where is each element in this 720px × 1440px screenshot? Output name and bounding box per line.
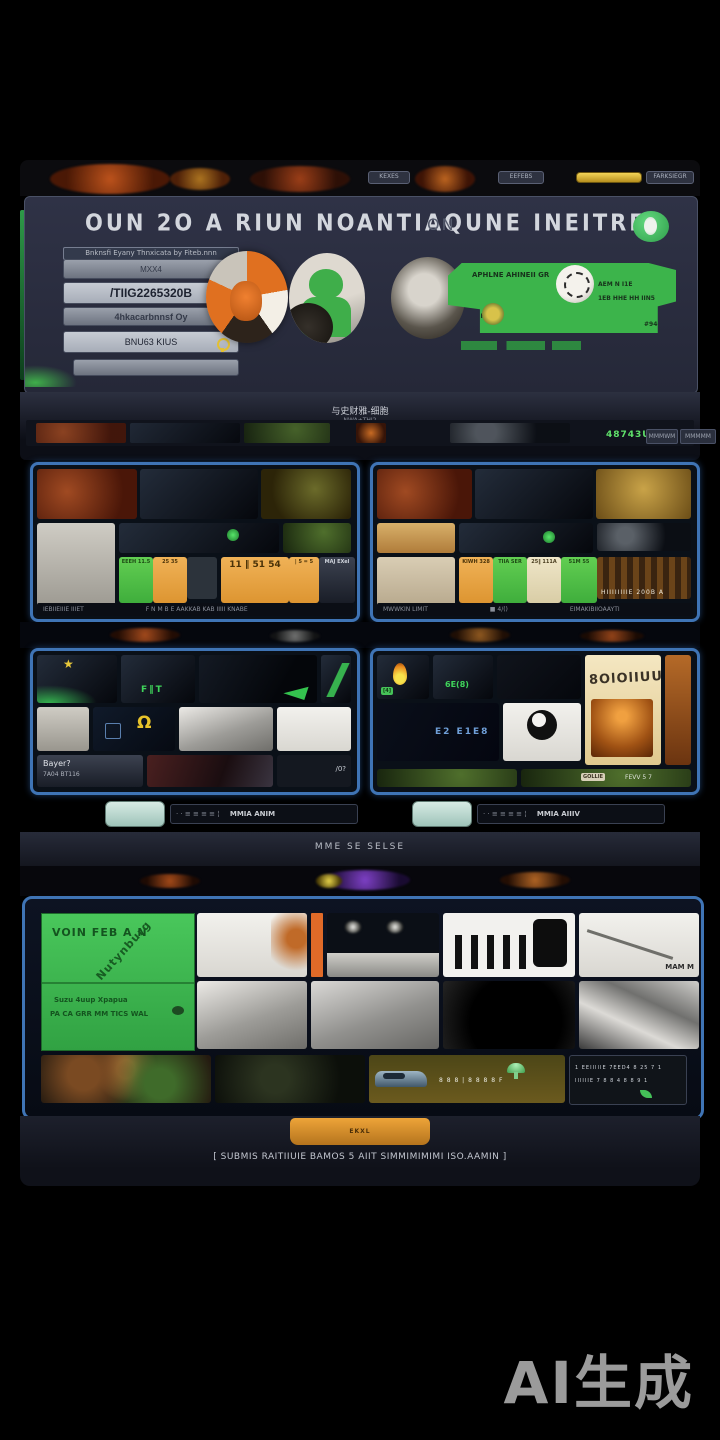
status-thumb — [130, 423, 240, 443]
diagonal-line — [587, 929, 674, 960]
footer-text: ■ 4/() — [490, 606, 508, 613]
car-strip-glyphs: 8 8 8 | 8 8 8 8 F — [439, 1077, 503, 1084]
bottom-bezel: EKXL [ SUBMIS RAITIIUIE BAMOS 5 AIIT SIM… — [20, 1116, 700, 1186]
thumbnail[interactable] — [37, 469, 137, 519]
thumbnail[interactable] — [377, 523, 455, 553]
value-tile-label: 25‖ 111A — [531, 559, 557, 565]
orange-patch — [271, 913, 307, 977]
green-note-card[interactable]: VOIN FEB A N Nutynburg Suzu 4uup Xpapua … — [41, 913, 195, 1051]
swirl-logo-icon — [527, 710, 557, 740]
snow-bank — [327, 953, 439, 977]
card-divider — [42, 982, 194, 984]
green-arrow-icon — [283, 680, 308, 700]
banner-line: #94C — [644, 321, 662, 328]
sketch-tile[interactable] — [197, 913, 307, 977]
header-progress-bar[interactable] — [576, 172, 642, 183]
slider-label: MMIA ANIM — [230, 810, 275, 818]
form-button-3-label: 4hkacarbnnsf Oy — [114, 312, 187, 322]
value-tile[interactable]: 25‖ 111A — [527, 557, 561, 603]
night-lights-strip — [20, 622, 700, 648]
mint-button-left[interactable] — [105, 801, 165, 827]
fire-glow-decor — [415, 166, 475, 192]
value-tile[interactable]: 11 ‖ 51 54 — [221, 557, 289, 603]
flame-icon — [393, 663, 407, 685]
thumbnail[interactable] — [283, 523, 351, 553]
thumbnail[interactable] — [140, 469, 258, 519]
status-button-2[interactable]: MMMMM — [680, 429, 716, 444]
form-button-key[interactable]: BNU63 KIUS — [63, 331, 239, 353]
thumbnail[interactable] — [596, 469, 691, 519]
value-tile-label: 11 ‖ 51 54 — [229, 560, 280, 570]
thumbnail[interactable] — [475, 469, 593, 519]
headlight — [345, 921, 361, 933]
value-tile-label: KIWH 328 — [462, 559, 490, 565]
header-chip-mid-label: EEFEBS — [510, 173, 533, 180]
blue-glyph-label: E2 E1E8 — [435, 727, 489, 737]
banner-line: AEM N I1E — [598, 281, 632, 288]
green-indicator-dot — [543, 531, 555, 543]
fingerprint-badge-icon[interactable] — [633, 211, 669, 242]
value-tile[interactable]: 51M 55 — [561, 557, 597, 603]
slider-ticks: · · ≡ ≡ ≡ ≡ ¦ — [483, 810, 527, 818]
inset-line: IIIIIIE 7 8 8 4 8 8 9 1 — [575, 1078, 648, 1084]
orange-tab-label: EKXL — [349, 1128, 370, 1135]
banner-line: APHLNE AHINEII GR — [472, 271, 549, 279]
bottom-collage-panel: VOIN FEB A N Nutynburg Suzu 4uup Xpapua … — [22, 896, 704, 1120]
green-fragment-decor — [461, 341, 581, 350]
fire-glow-decor — [250, 166, 350, 192]
dark-blob — [533, 919, 567, 967]
card-dot-icon — [172, 1006, 184, 1015]
footer-text: MWWKIN LIMIT — [383, 606, 428, 613]
diagonal-sketch-tile[interactable]: MAM M — [579, 913, 699, 977]
neon-sign-decor — [591, 699, 653, 757]
thumbnail[interactable] — [119, 523, 279, 553]
slider-ticks: · · ≡ ≡ ≡ ≡ ¦ — [176, 810, 220, 818]
glyph-inset: 1 EEIIIIIE 7EED4 8 25 7 1 IIIIIIE 7 8 8 … — [569, 1055, 687, 1105]
dark-tile[interactable] — [443, 981, 575, 1049]
green-indicator-dot — [227, 529, 239, 541]
status-button-2-label: MMMMM — [685, 433, 711, 440]
header-chip-left[interactable]: KEXES — [368, 171, 410, 184]
light-blob — [450, 628, 510, 642]
light-blob — [580, 630, 644, 642]
thumbnail[interactable] — [597, 523, 691, 551]
form-button-empty[interactable] — [73, 359, 239, 376]
bottom-chip: GOLLIE — [581, 773, 605, 781]
headlights-tile[interactable] — [327, 913, 439, 977]
status-thumb — [450, 423, 570, 443]
thumbnail[interactable]: Bayer? 7A04 BT116 — [37, 755, 143, 787]
green-glow — [37, 685, 97, 703]
status-counter: 48743U — [606, 430, 651, 440]
thumbnail[interactable] — [665, 655, 691, 765]
green-card-line: Suzu 4uup Xpapua — [54, 996, 128, 1004]
divider-strip: MME SE SELSE — [20, 832, 700, 866]
top-panel: OUN 2O A RIUN NOANTIAQUNE INEITREO ON Bn… — [24, 196, 698, 394]
slider-bar-left[interactable]: · · ≡ ≡ ≡ ≡ ¦ MMIA ANIM — [170, 804, 358, 824]
status-center-label: 与史财雅-细胞 — [20, 404, 700, 417]
thumbnail[interactable] — [179, 707, 273, 751]
value-tile[interactable]: 25 35 — [153, 557, 187, 603]
blue-box-icon — [105, 723, 121, 739]
value-tile[interactable]: TIIA SER — [493, 557, 527, 603]
footer-text: IEBIIEIIIE IIIET — [43, 606, 84, 613]
drapery-tile[interactable] — [311, 981, 439, 1049]
collage-photo[interactable] — [215, 1055, 365, 1103]
globe-icon — [556, 265, 594, 303]
leaf-icon — [640, 1090, 652, 1098]
banner-line: 1EB HHE HH IIN5 — [598, 295, 655, 302]
thumbnail[interactable] — [199, 655, 317, 703]
thumbnail[interactable] — [497, 655, 581, 699]
key-icon — [217, 338, 230, 351]
thumbnail[interactable]: 8OlOlIUU — [585, 655, 661, 765]
green-glyph-label: 6E(8) — [445, 680, 469, 689]
green-card-line: PA CA GRR MM TICS WAL — [50, 1010, 148, 1018]
thumbnail[interactable] — [321, 655, 351, 703]
gallery-panel-top-left: EEEH 11.5 25 35 11 ‖ 51 54 | 5 = 5 MAJ E… — [30, 462, 360, 622]
status-button-1-label: MMMWM — [649, 433, 676, 440]
value-tile[interactable] — [187, 557, 217, 599]
value-tile-label: TIIA SER — [498, 559, 522, 565]
green-banner: APHLNE AHINEII GR AEM N I1E 1EB HHE HH I… — [448, 263, 676, 333]
slider-bar-right[interactable]: · · ≡ ≡ ≡ ≡ ¦ MMIA AIIIV — [477, 804, 665, 824]
value-tile-label: 51M 55 — [569, 559, 590, 565]
header-chip-mid[interactable]: EEFEBS — [498, 171, 544, 184]
footer-text: EIMAKIBIIOAAYTI — [570, 606, 620, 613]
thumbnail[interactable] — [37, 707, 89, 751]
value-tile-label: | 5 = 5 — [295, 559, 313, 565]
status-strip: 与史财雅-细胞 —NWA+THI2— 48743U MMMWM MMMMM — [20, 392, 700, 460]
divider-label: MME SE SELSE — [20, 842, 700, 852]
thumbnail[interactable] — [503, 703, 581, 761]
thumbnail[interactable]: ★ — [37, 655, 117, 703]
thumbnail[interactable] — [261, 469, 351, 519]
orange-glow — [140, 874, 200, 888]
value-tile-label: 25 35 — [162, 559, 178, 565]
yellow-glow — [316, 874, 342, 888]
smoke-painting-tile[interactable] — [579, 981, 699, 1049]
panel-title: OUN 2O A RIUN NOANTIAQUNE INEITREO — [85, 210, 668, 236]
head-silhouette — [309, 269, 343, 299]
header-chip-right-label: FARKSIEGR — [653, 173, 686, 180]
value-tile[interactable]: HIIIIIIIIE 200B A — [597, 557, 691, 599]
green-corner-glow — [25, 365, 77, 387]
thumbnail[interactable] — [277, 707, 351, 751]
car-icon — [375, 1071, 427, 1087]
value-tile[interactable]: MAJ EXel — [319, 557, 355, 603]
collage-photo[interactable] — [41, 1055, 211, 1103]
panel-title-ghost: ON — [427, 215, 456, 234]
cream-tile-label: 8OlOlIUU — [589, 669, 661, 688]
fence-bars — [455, 935, 533, 969]
gallery-panel-top-right: KIWH 328 TIIA SER 25‖ 111A 51M 55 HIIIII… — [370, 462, 700, 622]
form-button-key-label: BNU63 KIUS — [125, 337, 178, 347]
value-tile[interactable]: KIWH 328 — [459, 557, 493, 603]
thumbnail[interactable] — [459, 523, 593, 553]
gallery-panel-bottom-right: [4] 6E(8) 8OlOlIUU E2 E1E8 GOLLIE FEVV 5… — [370, 648, 700, 795]
value-tile-label: HIIIIIIIIE 200B A — [601, 589, 664, 596]
thumbnail[interactable]: 6E(8) — [433, 655, 493, 699]
value-tile-label: EEEH 11.5 — [122, 559, 151, 565]
panel-footer: MWWKIN LIMIT ■ 4/() EIMAKIBIIOAAYTI — [377, 603, 693, 616]
panel-footer: IEBIIEIIIE IIIET F N M B E AAKKAB KAB II… — [37, 603, 353, 616]
tile-caption: Bayer? — [43, 759, 71, 768]
status-flare — [356, 423, 386, 443]
thumbnail[interactable] — [377, 469, 472, 519]
ai-watermark: AI生成 — [504, 1336, 694, 1420]
top-header-strip: KEXES EEFEBS FARKSIEGR — [20, 160, 700, 196]
fence-sketch-tile[interactable] — [443, 913, 575, 977]
thumbnail[interactable] — [377, 769, 517, 787]
value-tile[interactable]: | 5 = 5 — [289, 557, 319, 603]
thumbnail[interactable]: [4] — [377, 655, 429, 699]
shield-icon — [482, 303, 504, 325]
header-chip-right[interactable]: FARKSIEGR — [646, 171, 694, 184]
status-thumb — [36, 423, 126, 443]
orange-divider-strip — [311, 913, 323, 977]
tile-caption: 7A04 BT116 — [43, 771, 80, 778]
thumbnail[interactable]: /0? — [277, 755, 351, 787]
green-streak — [325, 663, 351, 697]
headlight — [387, 921, 403, 933]
green-glyph-label: F‖T — [141, 685, 164, 695]
thumbnail[interactable] — [147, 755, 273, 787]
thumbnail[interactable]: GOLLIE FEVV 5 7 — [521, 769, 691, 787]
footer-text: F N M B E AAKKAB KAB IIIII KNABE — [146, 606, 248, 613]
form-input-serial-value: /TIIG2265320B — [110, 286, 192, 300]
bottom-chip-text: FEVV 5 7 — [625, 774, 652, 781]
bottom-message: [ SUBMIS RAITIIUIE BAMOS 5 AIIT SIMMIMIM… — [20, 1152, 700, 1162]
drapery-tile[interactable] — [197, 981, 307, 1049]
omega-glyph: Ω — [137, 713, 151, 733]
header-chip-left-label: KEXES — [379, 173, 398, 180]
thumbnail[interactable]: E2 E1E8 — [377, 703, 499, 761]
orange-tab-button[interactable]: EKXL — [290, 1118, 430, 1145]
profile-emblem-icon — [289, 253, 365, 343]
car-strip-tile[interactable]: 8 8 8 | 8 8 8 8 F — [369, 1055, 565, 1103]
mint-button-right[interactable] — [412, 801, 472, 827]
gallery-panel-bottom-left: ★ F‖T Ω Bayer? 7A04 BT116 /0? — [30, 648, 360, 795]
thumbnail[interactable]: F‖T — [121, 655, 195, 703]
status-button-1[interactable]: MMMWM — [646, 429, 678, 444]
orange-glow — [500, 872, 570, 888]
inset-line: 1 EEIIIIIE 7EED4 8 25 7 1 — [575, 1065, 662, 1071]
thumbnail[interactable]: Ω — [93, 707, 175, 751]
star-icon: ★ — [63, 657, 74, 671]
green-chip: [4] — [381, 687, 393, 695]
form-button-1-label: MXX4 — [140, 265, 162, 274]
slider-label: MMIA AIIIV — [537, 810, 580, 818]
status-thumb — [244, 423, 330, 443]
fire-glow-decor — [170, 168, 230, 190]
light-blob — [110, 628, 180, 642]
value-tile[interactable]: EEEH 11.5 — [119, 557, 153, 603]
light-deco-strip — [20, 866, 700, 896]
mushroom-icon — [507, 1063, 525, 1073]
thumbnail[interactable] — [37, 523, 115, 613]
orange-emblem-icon — [206, 251, 288, 343]
light-blob — [270, 630, 320, 642]
fire-glow-decor — [50, 164, 170, 194]
tile-caption: /0? — [335, 765, 346, 773]
value-tile-label: MAJ EXel — [325, 559, 350, 565]
scribble-text: MAM M — [665, 963, 694, 971]
